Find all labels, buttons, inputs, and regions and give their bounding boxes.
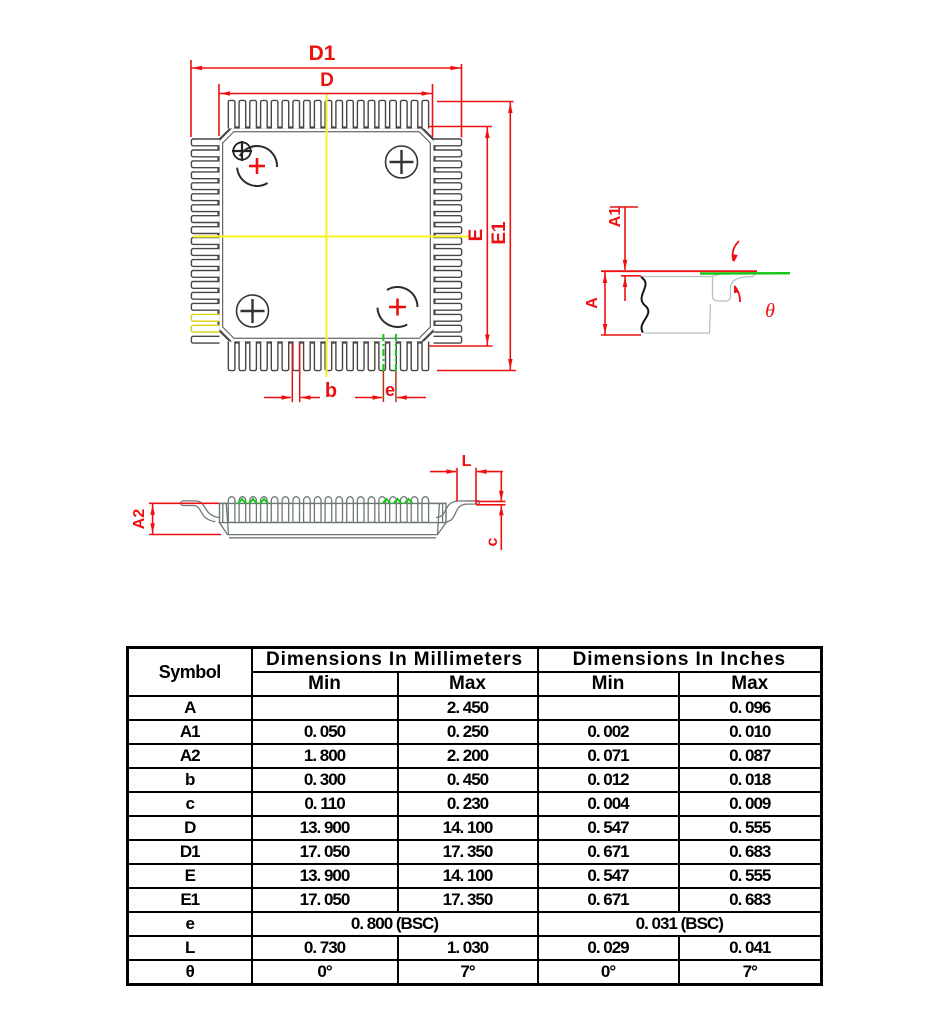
svg-text:A1: A1 bbox=[607, 207, 624, 228]
svg-text:D: D bbox=[320, 70, 334, 91]
svg-text:E1: E1 bbox=[489, 221, 510, 245]
svg-text:θ: θ bbox=[765, 300, 775, 322]
svg-text:D1: D1 bbox=[309, 42, 336, 65]
svg-text:E: E bbox=[466, 229, 487, 242]
svg-text:c: c bbox=[484, 537, 501, 546]
svg-text:A: A bbox=[584, 297, 601, 309]
svg-text:A2: A2 bbox=[131, 509, 148, 530]
svg-text:b: b bbox=[325, 380, 337, 402]
svg-text:e: e bbox=[385, 380, 395, 400]
svg-text:L: L bbox=[462, 453, 472, 470]
